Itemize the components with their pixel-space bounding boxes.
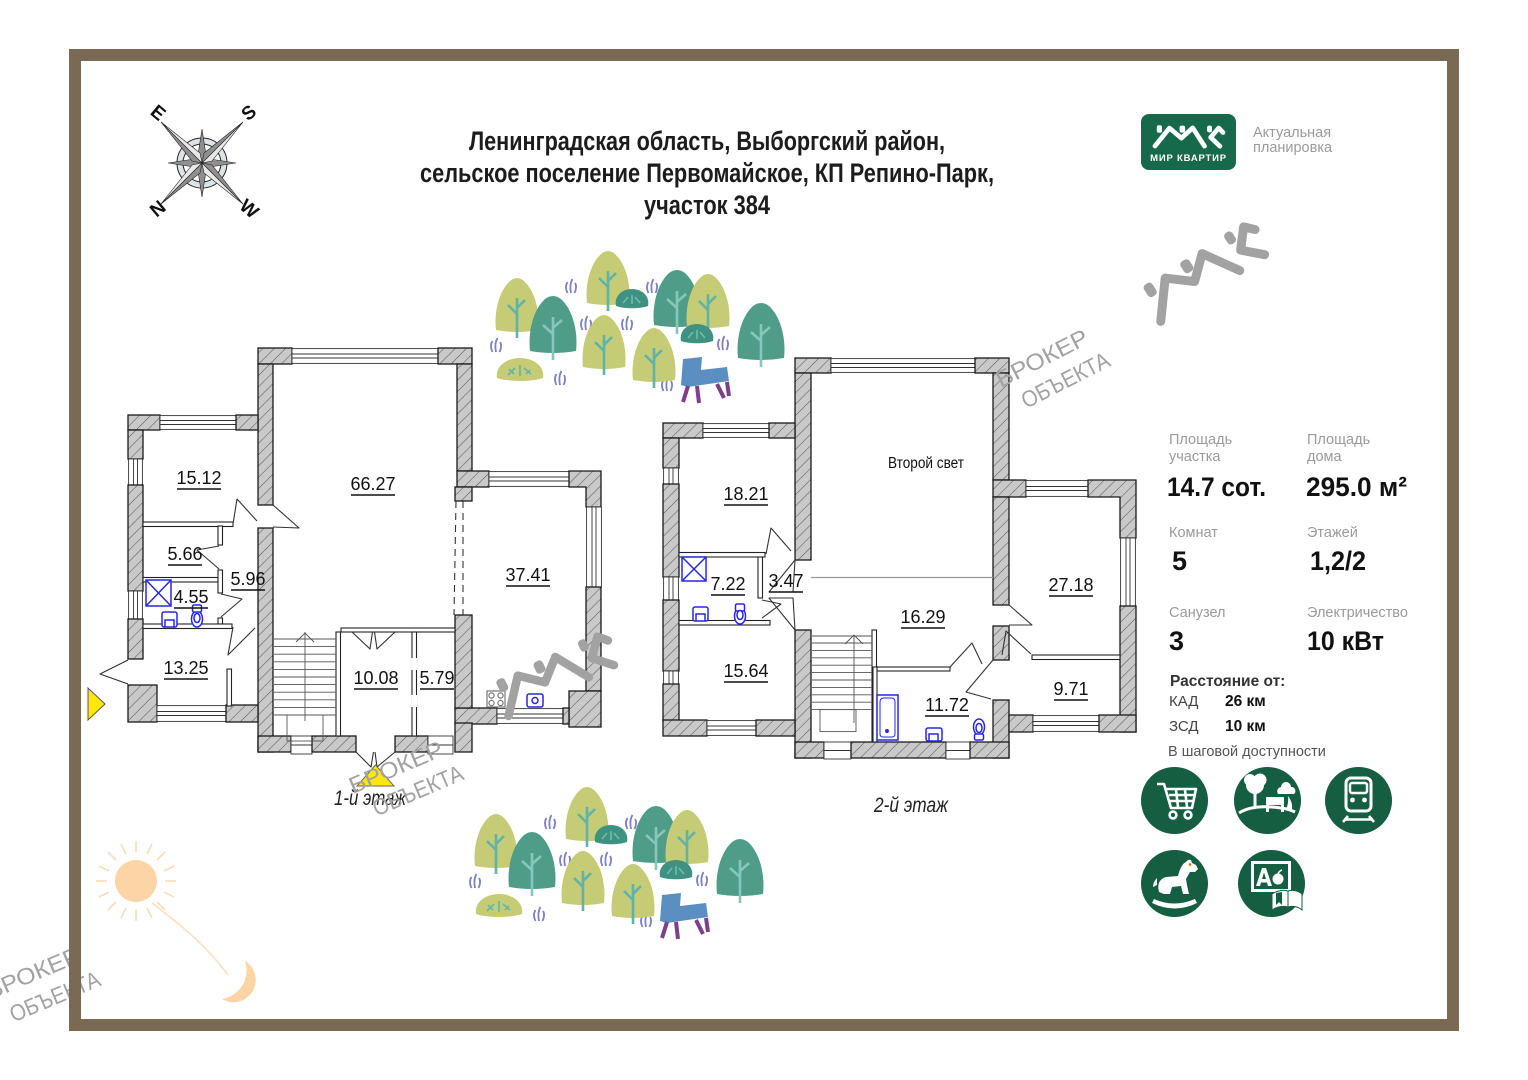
- svg-text:15.64: 15.64: [723, 661, 768, 681]
- svg-text:Комнат: Комнат: [1169, 525, 1218, 541]
- svg-text:295.0 м²: 295.0 м²: [1306, 472, 1407, 502]
- svg-text:10 кВт: 10 кВт: [1307, 626, 1384, 656]
- svg-text:10 км: 10 км: [1225, 718, 1266, 735]
- svg-text:МИР КВАРТИР: МИР КВАРТИР: [1150, 153, 1227, 164]
- svg-text:3: 3: [1169, 626, 1184, 656]
- svg-text:13.25: 13.25: [163, 658, 208, 678]
- svg-text:27.18: 27.18: [1048, 575, 1093, 595]
- svg-text:1,2/2: 1,2/2: [1310, 546, 1366, 576]
- svg-text:КАД: КАД: [1169, 693, 1198, 710]
- svg-text:участка: участка: [1169, 449, 1221, 465]
- svg-text:Второй свет: Второй свет: [888, 455, 964, 472]
- svg-text:Расстояние от:: Расстояние от:: [1170, 673, 1285, 690]
- svg-text:Актуальная: Актуальная: [1253, 125, 1331, 141]
- svg-text:15.12: 15.12: [176, 468, 221, 488]
- svg-text:Ленинградская область, Выборгс: Ленинградская область, Выборгский район,: [469, 126, 945, 156]
- svg-text:5: 5: [1172, 546, 1187, 576]
- svg-text:26 км: 26 км: [1225, 693, 1266, 710]
- svg-text:10.08: 10.08: [353, 668, 398, 688]
- svg-text:7.22: 7.22: [710, 574, 745, 594]
- svg-text:4.55: 4.55: [173, 587, 208, 607]
- svg-text:2-й этаж: 2-й этаж: [873, 794, 949, 817]
- svg-text:Электричество: Электричество: [1307, 605, 1408, 621]
- svg-text:Этажей: Этажей: [1307, 525, 1358, 541]
- svg-text:участок 384: участок 384: [644, 190, 770, 220]
- svg-text:9.71: 9.71: [1053, 679, 1088, 699]
- svg-text:Площадь: Площадь: [1169, 432, 1232, 448]
- svg-text:ЗСД: ЗСД: [1169, 718, 1199, 735]
- svg-text:5.66: 5.66: [167, 544, 202, 564]
- svg-text:3.47: 3.47: [768, 571, 803, 591]
- svg-text:планировка: планировка: [1253, 140, 1333, 156]
- svg-text:Площадь: Площадь: [1307, 432, 1370, 448]
- svg-text:В шаговой доступности: В шаговой доступности: [1168, 744, 1326, 760]
- svg-text:Санузел: Санузел: [1169, 605, 1226, 621]
- svg-text:14.7 сот.: 14.7 сот.: [1167, 472, 1266, 502]
- svg-text:5.79: 5.79: [419, 668, 454, 688]
- svg-text:18.21: 18.21: [723, 484, 768, 504]
- svg-text:11.72: 11.72: [925, 695, 969, 715]
- svg-text:сельское поселение Первомайско: сельское поселение Первомайское, КП Репи…: [420, 158, 994, 188]
- svg-text:66.27: 66.27: [350, 474, 395, 494]
- svg-text:16.29: 16.29: [900, 607, 945, 627]
- svg-text:дома: дома: [1307, 449, 1342, 465]
- svg-text:37.41: 37.41: [505, 565, 550, 585]
- svg-text:5.96: 5.96: [230, 569, 265, 589]
